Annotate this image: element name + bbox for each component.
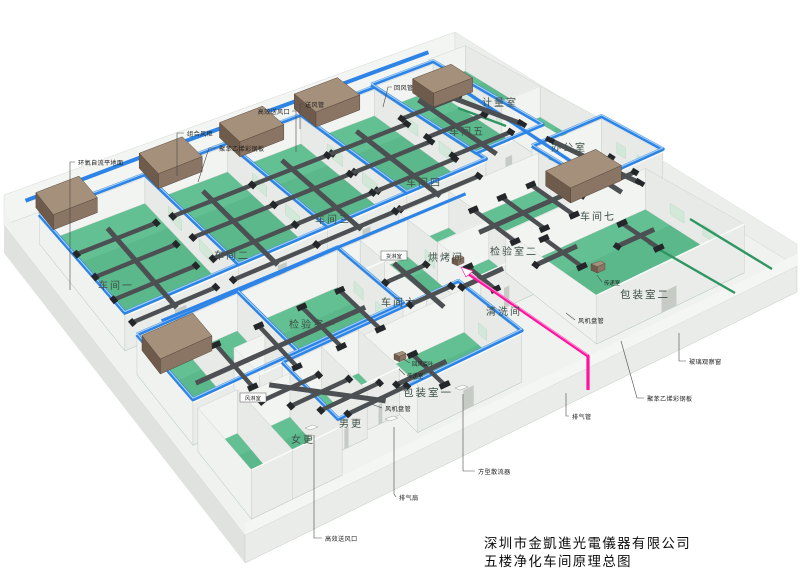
callout-glass-window: 玻璃观察窗 xyxy=(689,358,721,366)
label-workshop4: 车间四 xyxy=(406,176,442,189)
drawing-title: 五楼净化车间原理总图 xyxy=(484,553,632,570)
callout-supply-duct: 送风管 xyxy=(305,101,324,109)
title-block: 深圳市金凱進光電儀器有限公司 五楼净化车间原理总图 xyxy=(484,535,691,570)
label-baking: 烘烤间 xyxy=(428,251,464,264)
label-workshop1: 车间一 xyxy=(98,279,134,292)
label-workshop6: 车间六 xyxy=(381,296,417,309)
label-workshop7: 车间七 xyxy=(580,210,616,223)
cleanroom-isometric-diagram: 组合风柜 聚苯乙烯彩钢板 环氧自流平地面 高效送风口 送风管 回风管 玻璃观察窗… xyxy=(0,0,800,587)
callout-return-duct: 回风管 xyxy=(394,84,413,92)
label-workshop5: 车间五 xyxy=(449,125,485,138)
cleanroom-diagram-page: 组合风柜 聚苯乙烯彩钢板 环氧自流平地面 高效送风口 送风管 回风管 玻璃观察窗… xyxy=(0,0,800,587)
callout-hepa-bottom: 高效送风口 xyxy=(325,535,357,543)
callout-exhaust-fan: 排气扇 xyxy=(399,494,418,502)
callout-panel-top: 聚苯乙烯彩钢板 xyxy=(219,145,264,153)
label-office: 办公室 xyxy=(551,141,587,154)
callout-ahu: 组合风柜 xyxy=(187,130,213,138)
label-male-changing: 男更 xyxy=(339,418,363,430)
callout-pass-box-bottom: 传递室 xyxy=(407,372,424,380)
label-packing2: 包装室二 xyxy=(620,288,670,301)
label-female-changing: 女更 xyxy=(291,433,315,446)
callout-square-diffuser: 方型散流器 xyxy=(478,468,511,476)
callout-fan-coil-right: 风机盘管 xyxy=(578,317,604,325)
label-workshop3: 车间三 xyxy=(315,213,351,226)
company-name: 深圳市金凱進光電儀器有限公司 xyxy=(484,535,691,552)
label-workshop2: 车间二 xyxy=(214,249,250,262)
callout-fan-coil-bottom: 风机盘管 xyxy=(385,405,411,413)
label-metering: 计量室 xyxy=(482,96,518,109)
label-cargo-shower: 货淋室 xyxy=(386,252,402,260)
label-cleaning: 清洗间 xyxy=(486,305,522,318)
callout-pass-box-right: 传递室 xyxy=(604,279,621,287)
callout-exhaust-pipe: 排气管 xyxy=(572,413,591,421)
callout-panel-right: 聚苯乙烯彩钢板 xyxy=(647,395,692,403)
label-air-shower: 风淋室 xyxy=(245,394,261,402)
label-inspection2: 检验室二 xyxy=(490,245,538,258)
label-inspection1: 检验室一 xyxy=(289,318,337,331)
callout-hepa-top: 高效送风口 xyxy=(258,108,290,116)
callout-return-louver: 回风百叶 xyxy=(412,360,434,368)
callout-epoxy-floor: 环氧自流平地面 xyxy=(78,159,123,167)
label-packing1: 包装室一 xyxy=(403,386,453,399)
